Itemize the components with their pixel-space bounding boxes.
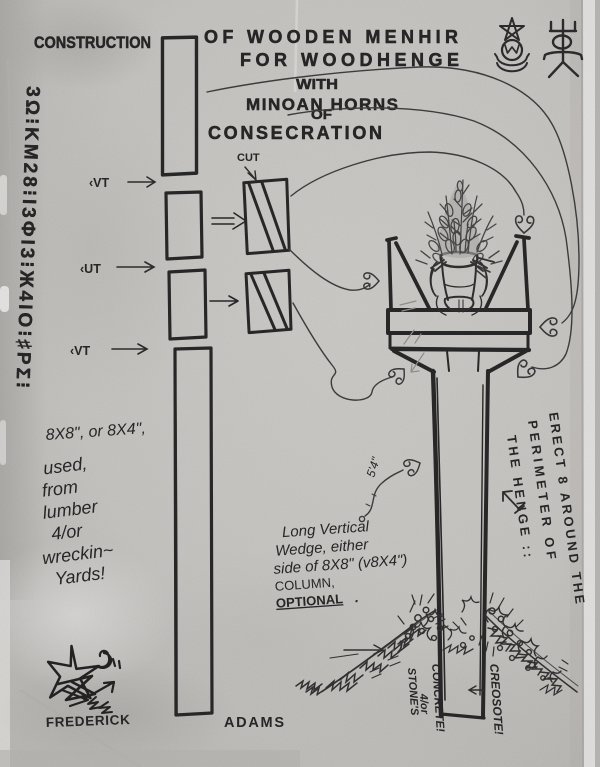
svg-text:CUT: CUT xyxy=(237,152,260,164)
svg-text:‹UT: ‹UT xyxy=(80,262,101,276)
svg-text:OF WOODEN MENHIR: OF WOODEN MENHIR xyxy=(204,27,458,47)
svg-text:OF: OF xyxy=(311,106,332,122)
svg-text:CONSTRUCTION: CONSTRUCTION xyxy=(34,33,151,52)
svg-text:CONSECRATION: CONSECRATION xyxy=(208,123,382,143)
svg-text:‹VT: ‹VT xyxy=(70,344,91,358)
svg-text:ADAMS: ADAMS xyxy=(224,715,284,731)
svg-text:FREDERICK: FREDERICK xyxy=(46,712,131,730)
svg-text:4/or: 4/or xyxy=(417,692,430,715)
svg-text:4/or: 4/or xyxy=(50,520,84,544)
svg-text:WITH: WITH xyxy=(296,76,338,93)
svg-text:‹VT: ‹VT xyxy=(89,176,110,190)
